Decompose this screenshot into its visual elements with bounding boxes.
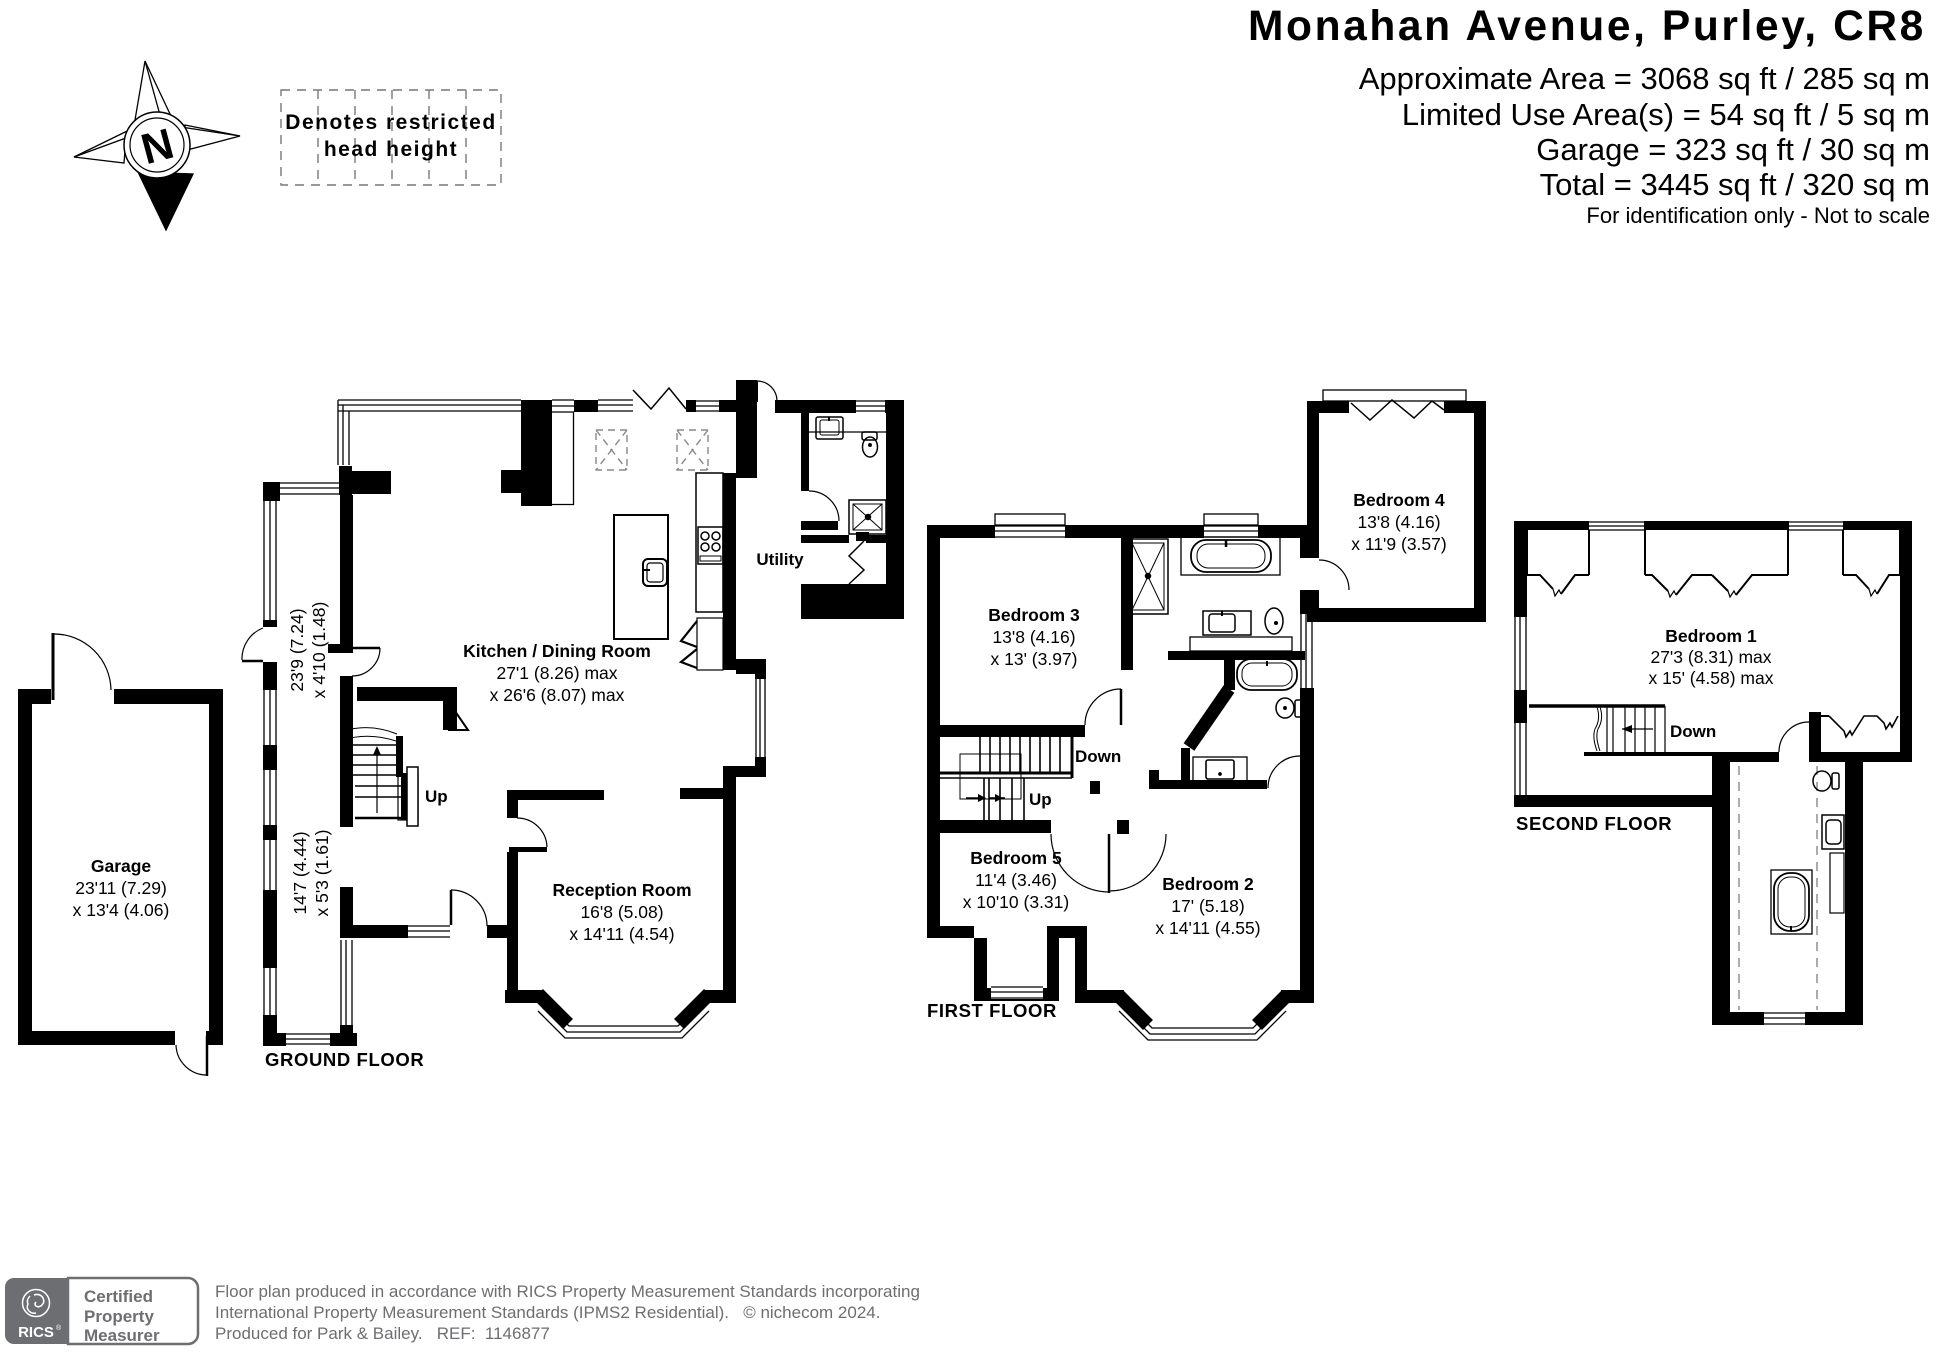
- svg-text:head height: head height: [324, 138, 458, 161]
- svg-text:x 4'10 (1.48): x 4'10 (1.48): [309, 602, 329, 699]
- svg-text:SECOND FLOOR: SECOND FLOOR: [1516, 813, 1672, 834]
- svg-text:Down: Down: [1670, 722, 1716, 741]
- svg-text:International Property Measure: International Property Measurement Stand…: [215, 1303, 880, 1322]
- svg-text:23'9 (7.24): 23'9 (7.24): [287, 608, 307, 691]
- svg-text:Bedroom 5: Bedroom 5: [970, 848, 1062, 868]
- svg-text:x 14'11 (4.54): x 14'11 (4.54): [569, 924, 674, 944]
- svg-text:x 11'9 (3.57): x 11'9 (3.57): [1351, 534, 1446, 554]
- svg-text:Up: Up: [1029, 790, 1052, 809]
- svg-text:x 13' (3.97): x 13' (3.97): [991, 649, 1078, 669]
- svg-text:Monahan Avenue, Purley, CR8: Monahan Avenue, Purley, CR8: [1248, 3, 1926, 50]
- svg-text:13'8 (4.16): 13'8 (4.16): [1357, 512, 1440, 532]
- svg-text:Reception Room: Reception Room: [552, 880, 691, 900]
- svg-text:Limited Use Area(s) = 54 sq ft: Limited Use Area(s) = 54 sq ft / 5 sq m: [1402, 97, 1930, 132]
- svg-text:RICS: RICS: [18, 1324, 54, 1341]
- svg-text:x 14'11 (4.55): x 14'11 (4.55): [1155, 918, 1260, 938]
- svg-text:17' (5.18): 17' (5.18): [1171, 896, 1244, 916]
- svg-text:Measurer: Measurer: [84, 1326, 160, 1345]
- svg-text:Total = 3445 sq ft / 320 sq m: Total = 3445 sq ft / 320 sq m: [1540, 167, 1930, 202]
- svg-text:Up: Up: [425, 787, 448, 806]
- svg-text:x 5'3 (1.61): x 5'3 (1.61): [312, 830, 332, 917]
- svg-text:14'7 (4.44): 14'7 (4.44): [290, 831, 310, 914]
- svg-text:Approximate Area = 3068 sq ft: Approximate Area = 3068 sq ft / 285 sq m: [1359, 61, 1930, 96]
- svg-text:For identification only - Not: For identification only - Not to scale: [1586, 203, 1930, 228]
- svg-text:11'4 (3.46): 11'4 (3.46): [975, 870, 1057, 890]
- svg-text:®: ®: [56, 1324, 62, 1332]
- svg-text:Garage = 323 sq ft / 30 sq m: Garage = 323 sq ft / 30 sq m: [1536, 132, 1930, 167]
- svg-text:Property: Property: [84, 1307, 154, 1326]
- svg-text:Produced for Park & Bailey.: Produced for Park & Bailey. REF: 1146877: [215, 1324, 550, 1343]
- svg-text:27'3 (8.31) max: 27'3 (8.31) max: [1650, 647, 1771, 667]
- svg-text:Utility: Utility: [756, 550, 804, 569]
- svg-text:GROUND FLOOR: GROUND FLOOR: [265, 1049, 424, 1070]
- svg-text:16'8 (5.08): 16'8 (5.08): [580, 902, 663, 922]
- svg-text:Bedroom 2: Bedroom 2: [1162, 874, 1254, 894]
- svg-text:Kitchen / Dining Room: Kitchen / Dining Room: [463, 641, 651, 661]
- svg-text:Floor plan produced in accorda: Floor plan produced in accordance with R…: [215, 1282, 920, 1301]
- svg-text:x 26'6 (8.07) max: x 26'6 (8.07) max: [490, 685, 625, 705]
- svg-text:Certified: Certified: [84, 1287, 153, 1306]
- svg-text:Garage: Garage: [91, 856, 152, 876]
- svg-text:x 10'10 (3.31): x 10'10 (3.31): [963, 892, 1069, 912]
- svg-text:Bedroom 3: Bedroom 3: [988, 605, 1080, 625]
- svg-text:x 15' (4.58) max: x 15' (4.58) max: [1649, 668, 1774, 688]
- svg-text:27'1 (8.26) max: 27'1 (8.26) max: [496, 663, 617, 683]
- svg-text:Denotes restricted: Denotes restricted: [285, 111, 496, 134]
- svg-text:13'8 (4.16): 13'8 (4.16): [992, 627, 1075, 647]
- svg-text:Down: Down: [1075, 747, 1121, 766]
- svg-text:23'11 (7.29): 23'11 (7.29): [75, 878, 167, 898]
- svg-text:FIRST FLOOR: FIRST FLOOR: [927, 1000, 1057, 1021]
- svg-text:x 13'4 (4.06): x 13'4 (4.06): [73, 900, 170, 920]
- svg-text:Bedroom 1: Bedroom 1: [1665, 626, 1757, 646]
- svg-text:Bedroom 4: Bedroom 4: [1353, 490, 1445, 510]
